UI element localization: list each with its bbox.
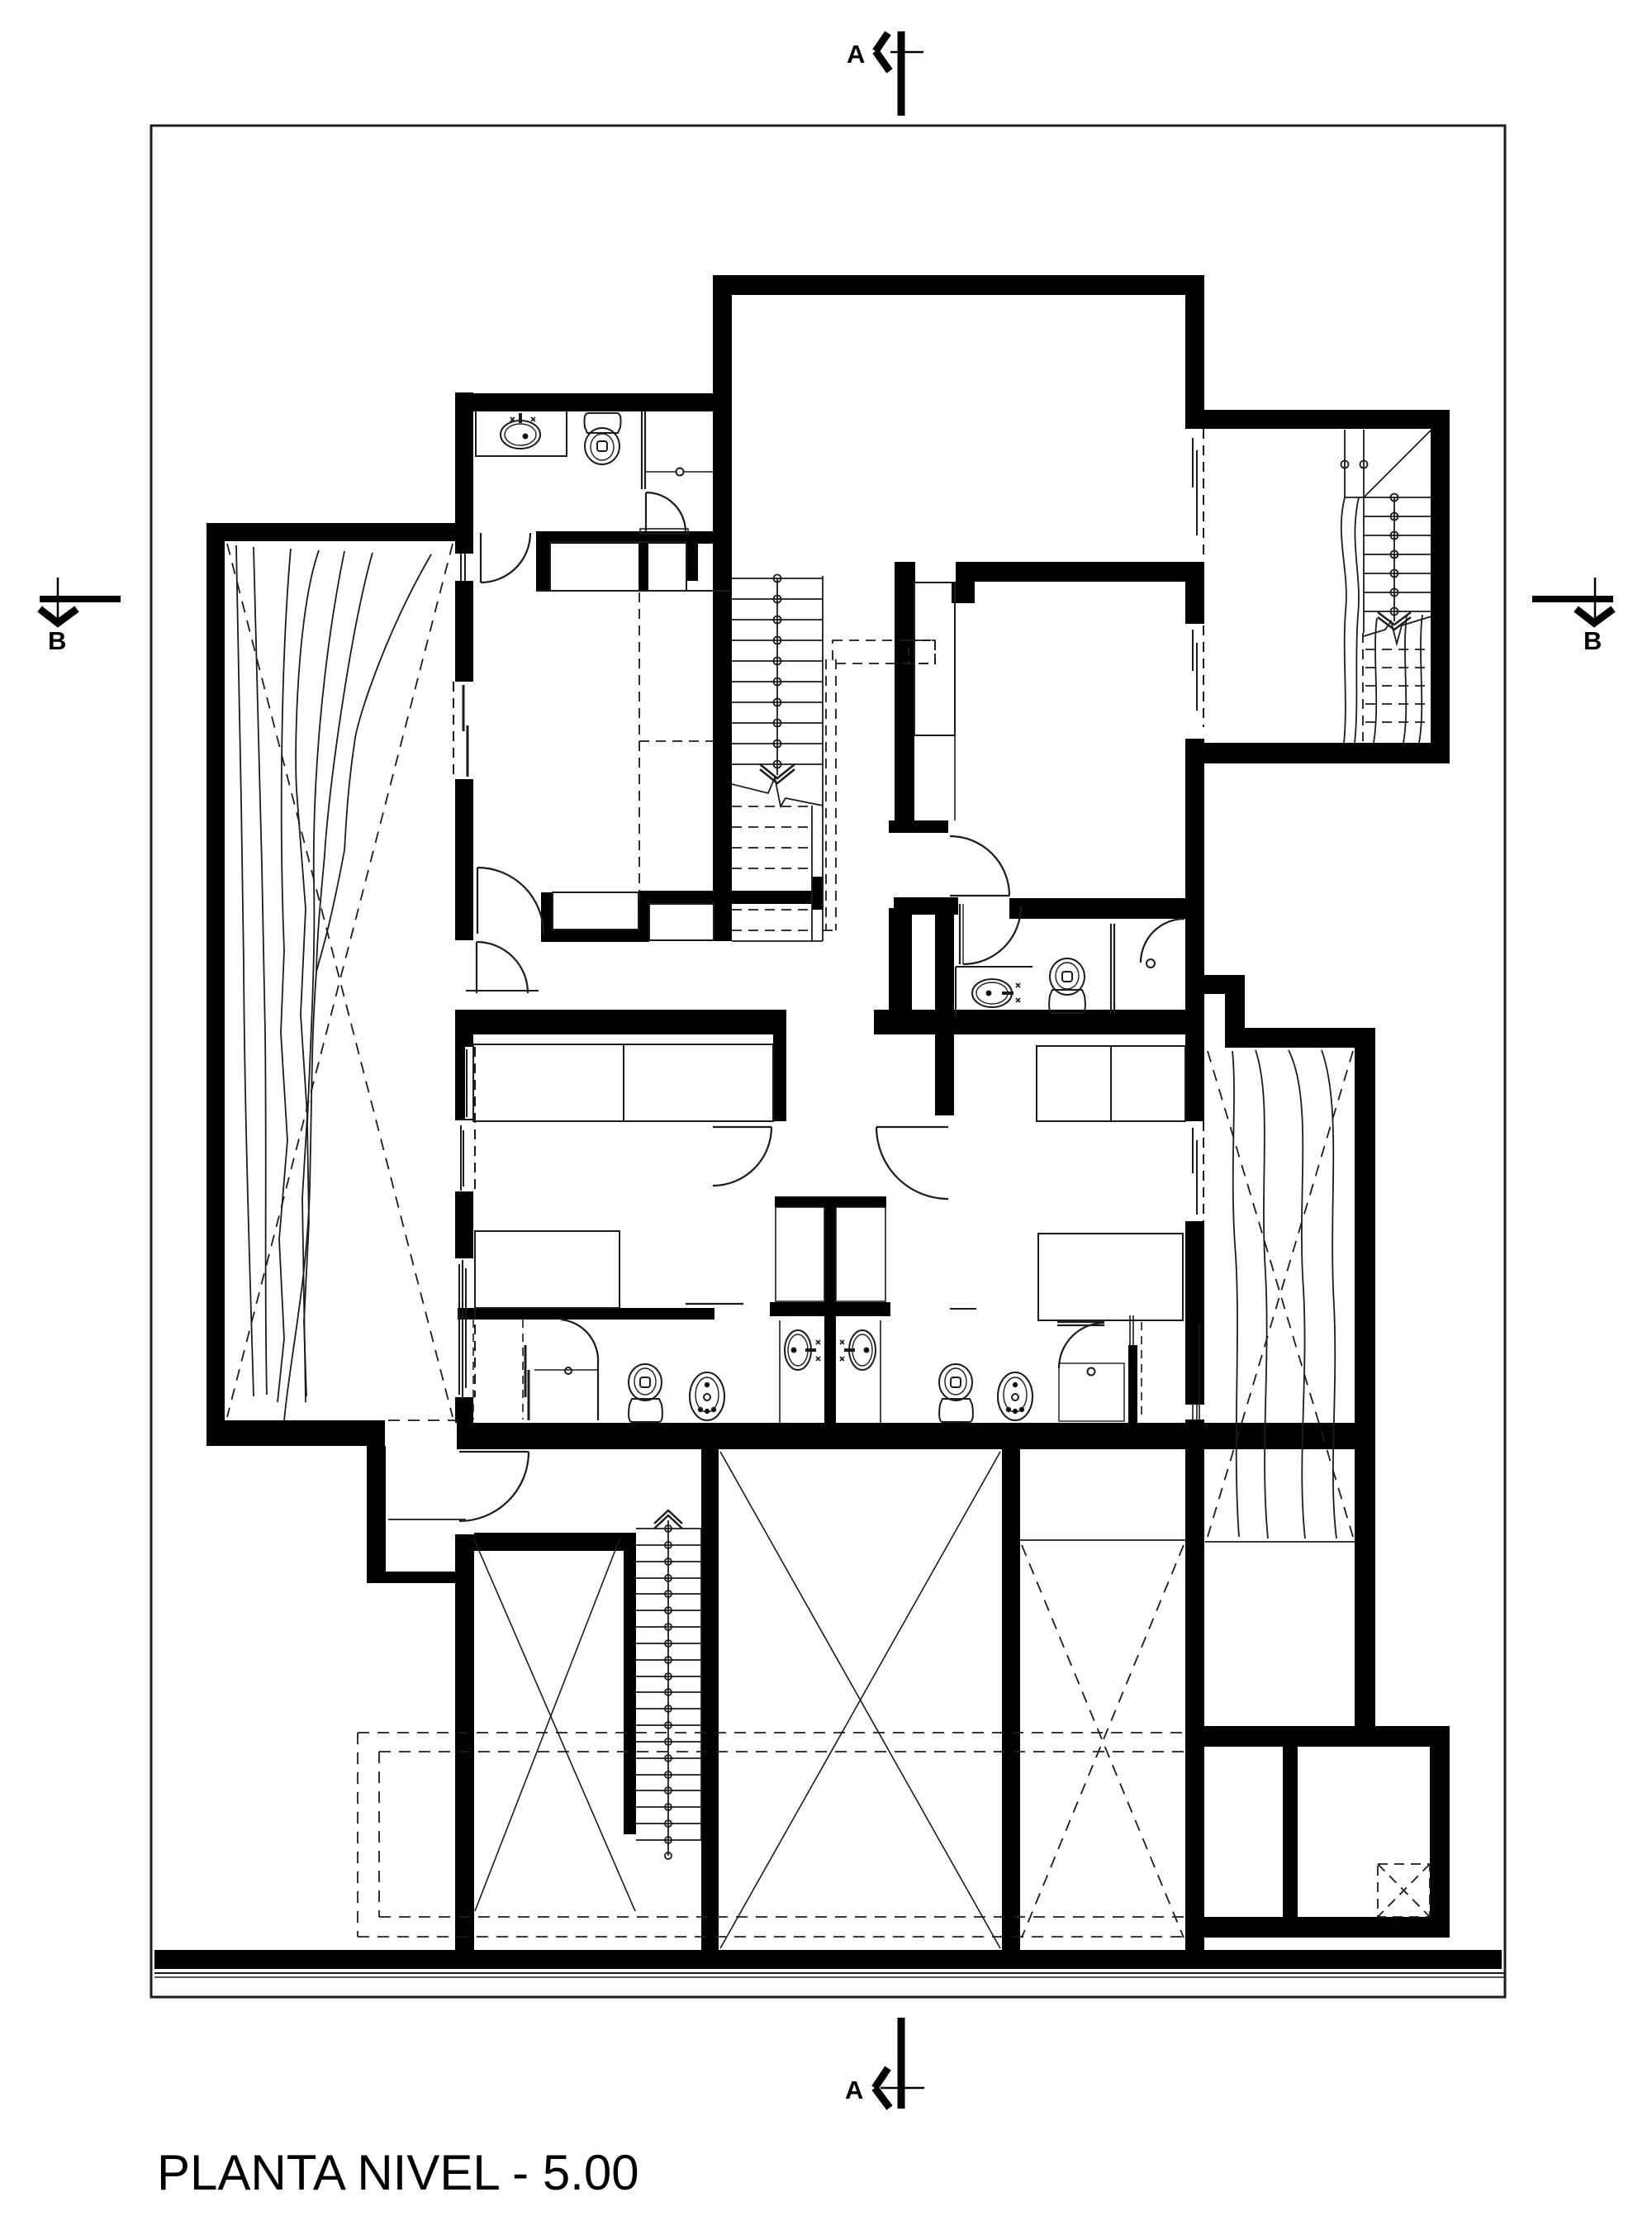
svg-text:B: B — [1583, 626, 1602, 655]
svg-text:A: A — [847, 40, 865, 69]
svg-text:A: A — [845, 2076, 863, 2104]
svg-text:PLANTA NIVEL - 5.00: PLANTA NIVEL - 5.00 — [157, 2145, 639, 2200]
svg-text:B: B — [48, 626, 66, 655]
